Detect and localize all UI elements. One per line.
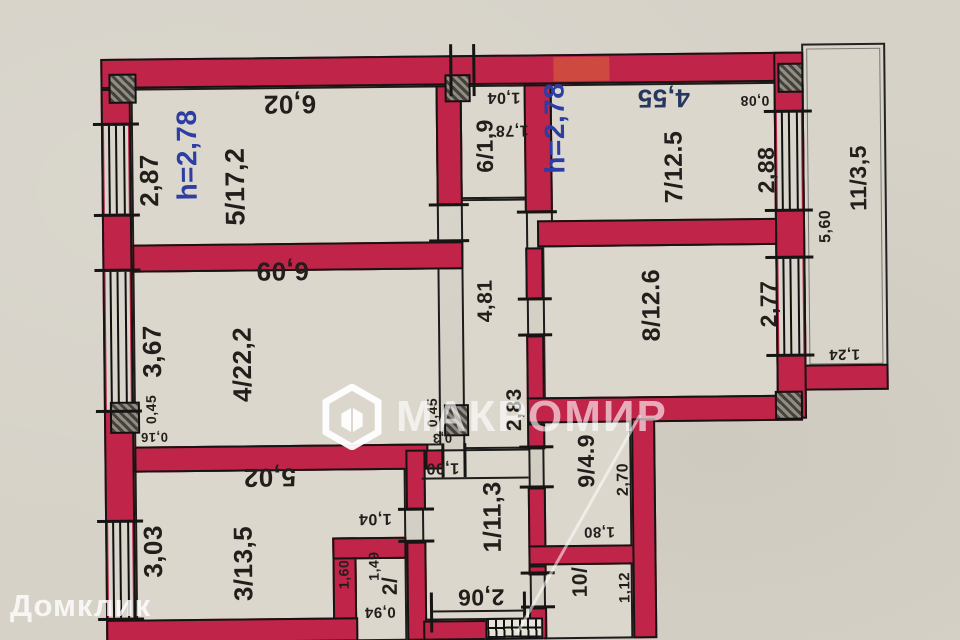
dim-room4-depth: 3,67 [137,325,169,378]
dim-balcony-length: 5,60 [817,210,835,243]
dim-room7-width: 4,55 [637,82,690,114]
dim-1-60: 1,60 [336,560,352,589]
room-1-label: 1/11,3 [478,481,508,552]
dim-room6-width: 1,04 [487,88,520,106]
dim-1-04-door: 1,04 [358,509,391,527]
dim-0-45-mid: 0,45 [424,398,440,427]
dim-0-3: 0,3 [432,431,452,446]
dim-0-45-left: 0,45 [143,395,159,424]
room-8-label: 8/12.6 [637,269,667,342]
dim-1-80: 1,80 [584,523,615,540]
dim-room4-width: 6,09 [256,255,309,287]
dim-1-00: 1,00 [426,458,459,476]
dim-room9-2-70: 2,70 [615,463,633,496]
dim-balcony-1-24: 1,24 [829,346,860,363]
room-9-label: 9/4.9 [573,434,601,488]
dim-room8-window: 2,77 [755,280,782,327]
dim-0-16: 0,16 [140,430,167,445]
dim-0-08: 0,08 [740,93,769,109]
dim-1-12: 1,12 [616,572,633,603]
room-2-label: 2/ [379,577,403,596]
dim-corridor-4-81: 4,81 [474,279,498,322]
room-4-label: 4/22,2 [227,327,259,403]
labels-layer: 5/17,26,022,87h=2,786/1,91,041,78h=2,784… [0,0,960,640]
room-7-label: 7/12.5 [660,131,690,204]
dim-room5-depth: 2,87 [134,154,166,207]
dim-corridor-2-83: 2,83 [503,388,527,431]
room-3-label: 3/13,5 [228,526,260,602]
dim-0-94: 0,94 [364,603,395,620]
dim-2-06: 2,06 [457,583,504,610]
dim-room5-width: 6,02 [263,88,316,120]
room-10-label: 10/ [569,566,593,597]
room-11-label: 11/3,5 [845,145,873,211]
ceiling-height-right: h=2,78 [539,83,572,174]
floor-plan-scan: 5/17,26,022,87h=2,786/1,91,041,78h=2,784… [0,0,960,640]
room-5-label: 5/17,2 [220,147,252,225]
dim-room7-window: 2,88 [753,146,780,193]
ceiling-height-left: h=2,78 [171,109,204,200]
dim-room3-width: 5,02 [243,461,296,493]
dim-room6-depth: 1,78 [495,120,528,138]
dim-room3-depth: 3,03 [138,525,170,578]
floor-plan: 5/17,26,022,87h=2,786/1,91,041,78h=2,784… [0,0,960,640]
